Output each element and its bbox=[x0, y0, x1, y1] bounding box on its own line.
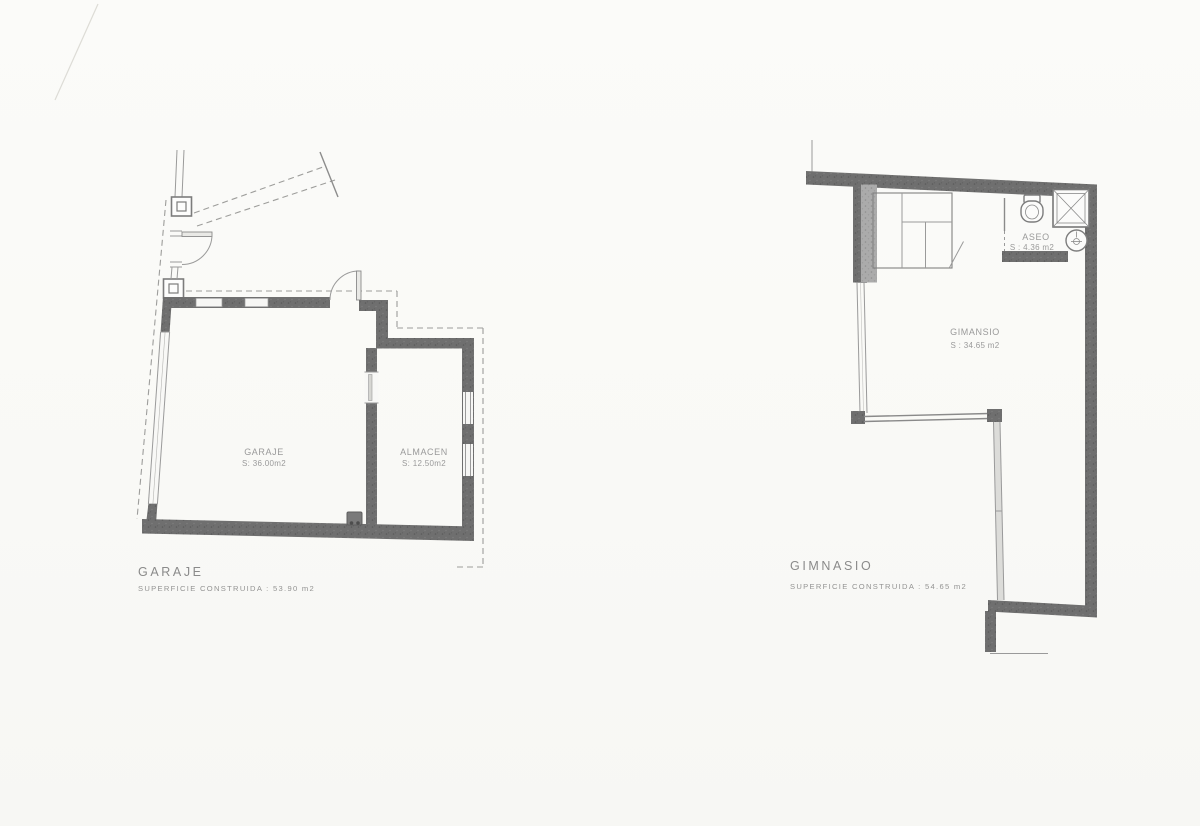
corridor-window-wall bbox=[994, 422, 1005, 600]
site-boundary-line bbox=[320, 152, 338, 197]
gimnasio-bottom-wall bbox=[851, 409, 1002, 424]
shower-icon bbox=[1053, 190, 1089, 228]
porch-wall bbox=[175, 150, 184, 197]
boiler-fixture bbox=[347, 512, 362, 525]
door-swing-arc bbox=[330, 271, 359, 300]
garaje-room-label: GARAJE bbox=[244, 447, 284, 457]
divider-door-leaf bbox=[369, 375, 373, 401]
almacen-right-wall bbox=[462, 349, 474, 532]
window bbox=[245, 298, 268, 306]
gimnasio-plan-title: GIMNASIO bbox=[790, 559, 873, 573]
aseo-room-label: ASEO bbox=[1022, 232, 1049, 242]
scanned-floor-plan-sheet: GARAJE S: 36.00m2 ALMACEN S: 12.50m2 GAR… bbox=[0, 0, 1200, 826]
gimnasio-room-area: S : 34.65 m2 bbox=[951, 341, 1000, 350]
garaje-bottom-wall bbox=[142, 519, 474, 541]
floor-plan-canvas: GARAJE S: 36.00m2 ALMACEN S: 12.50m2 GAR… bbox=[0, 0, 1200, 826]
garaje-dashed-boundary bbox=[137, 167, 483, 567]
gimnasio-plan-area-label: SUPERFICIE CONSTRUIDA : 54.65 m2 bbox=[790, 582, 967, 591]
window bbox=[463, 392, 473, 424]
washbasin-icon bbox=[1066, 230, 1087, 251]
porch-column-bottom bbox=[164, 279, 184, 298]
porch-column-top bbox=[172, 197, 192, 216]
garaje-plan-area-label: SUPERFICIE CONSTRUIDA : 53.90 m2 bbox=[138, 584, 315, 593]
garaje-entry-door bbox=[330, 271, 361, 300]
toilet-icon bbox=[1021, 195, 1043, 222]
porch-door-swing-arc bbox=[182, 235, 212, 265]
gimnasio-plan: GIMANSIO S : 34.65 m2 ASEO S : 4.36 m2 G… bbox=[790, 140, 1097, 654]
door-leaf bbox=[357, 271, 362, 300]
aseo-room-area: S : 4.36 m2 bbox=[1010, 243, 1054, 252]
gimnasio-room-label: GIMANSIO bbox=[950, 327, 1000, 337]
paper-corner-artifact bbox=[55, 4, 98, 100]
garaje-room-area: S: 36.00m2 bbox=[242, 459, 286, 468]
garaje-almacen-divider-wall bbox=[365, 348, 379, 525]
garaje-plan-title: GARAJE bbox=[138, 565, 204, 579]
porch-door bbox=[170, 231, 212, 279]
porch-door-leaf bbox=[182, 232, 212, 237]
cabinet-lockers bbox=[873, 193, 964, 268]
almacen-top-wall bbox=[359, 300, 474, 349]
window bbox=[196, 298, 222, 306]
garaje-top-wall bbox=[163, 297, 330, 308]
almacen-room-label: ALMACEN bbox=[400, 447, 448, 457]
garaje-plan: GARAJE S: 36.00m2 ALMACEN S: 12.50m2 GAR… bbox=[137, 150, 483, 593]
gimnasio-left-window-wall bbox=[857, 283, 867, 414]
corridor-bottom-wall bbox=[988, 600, 1097, 618]
aseo-bottom-wall bbox=[1002, 251, 1068, 262]
almacen-room-area: S: 12.50m2 bbox=[402, 459, 446, 468]
garaje-left-wall bbox=[146, 297, 172, 524]
gimnasio-right-wall bbox=[1085, 193, 1097, 612]
window bbox=[463, 444, 473, 476]
exterior-step-wall bbox=[985, 611, 1048, 654]
